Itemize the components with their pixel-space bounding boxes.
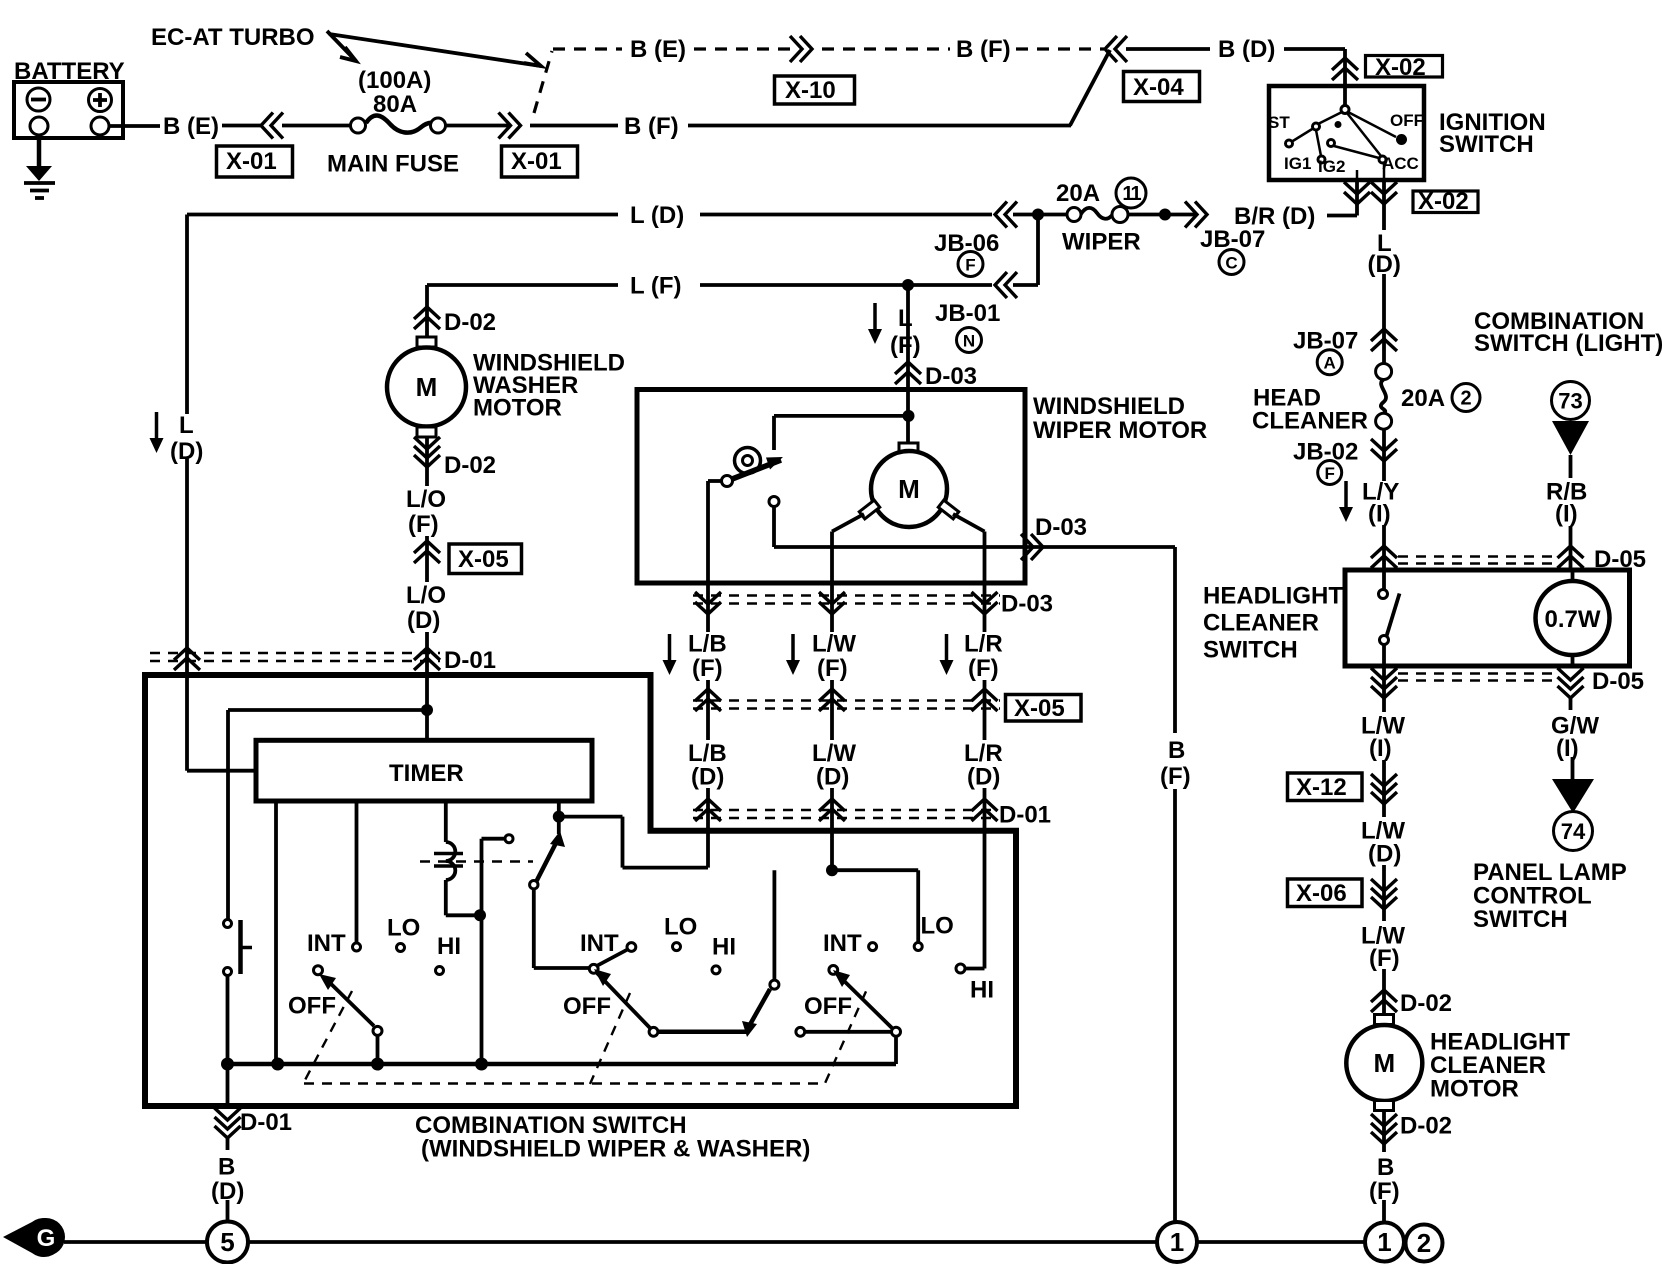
svg-text:(D): (D) — [1368, 841, 1401, 868]
svg-text:(F): (F) — [692, 655, 723, 682]
svg-text:OFF: OFF — [563, 993, 611, 1020]
svg-text:(D): (D) — [211, 1178, 244, 1205]
svg-text:L/B: L/B — [688, 631, 727, 658]
svg-text:X-02: X-02 — [1375, 54, 1426, 81]
svg-text:X-01: X-01 — [511, 148, 562, 175]
svg-text:HI: HI — [712, 934, 736, 961]
svg-text:D-02: D-02 — [1400, 1113, 1452, 1140]
svg-text:G: G — [37, 1225, 56, 1252]
svg-text:(I): (I) — [1556, 735, 1579, 762]
svg-text:OFF: OFF — [288, 993, 336, 1020]
svg-text:B (E): B (E) — [163, 113, 219, 140]
svg-text:(100A): (100A) — [358, 67, 431, 94]
svg-text:(F): (F) — [817, 655, 848, 682]
svg-text:20A: 20A — [1401, 385, 1445, 412]
svg-text:1: 1 — [1377, 1227, 1391, 1257]
svg-text:74: 74 — [1561, 819, 1586, 844]
svg-text:(WINDSHIELD WIPER & WASHER): (WINDSHIELD WIPER & WASHER) — [421, 1136, 810, 1163]
svg-text:LO: LO — [664, 914, 697, 941]
svg-text:L/O: L/O — [406, 486, 446, 513]
svg-text:20A: 20A — [1056, 180, 1100, 207]
svg-text:(D): (D) — [691, 764, 724, 791]
svg-text:(D): (D) — [407, 607, 440, 634]
svg-text:B: B — [1377, 1154, 1394, 1181]
svg-text:INT: INT — [580, 930, 619, 957]
svg-text:M: M — [898, 474, 920, 504]
svg-text:D-01: D-01 — [240, 1109, 292, 1136]
svg-text:SWITCH (LIGHT): SWITCH (LIGHT) — [1474, 330, 1662, 357]
svg-text:WIPER MOTOR: WIPER MOTOR — [1033, 417, 1207, 444]
svg-text:M: M — [416, 372, 438, 402]
svg-text:(F): (F) — [968, 655, 999, 682]
svg-text:73: 73 — [1558, 389, 1582, 414]
svg-text:X-02: X-02 — [1418, 188, 1469, 215]
svg-text:X-06: X-06 — [1296, 880, 1347, 907]
svg-text:X-05: X-05 — [458, 546, 509, 573]
svg-text:SWITCH: SWITCH — [1473, 906, 1568, 933]
svg-text:MOTOR: MOTOR — [1430, 1076, 1519, 1103]
svg-text:B (E): B (E) — [630, 36, 686, 63]
svg-text:(F): (F) — [890, 332, 921, 359]
svg-text:(D): (D) — [1368, 251, 1401, 278]
svg-text:(I): (I) — [1555, 501, 1578, 528]
svg-text:X-01: X-01 — [226, 148, 277, 175]
svg-text:D-03: D-03 — [1035, 514, 1087, 541]
svg-text:5: 5 — [220, 1227, 234, 1257]
svg-text:0.7W: 0.7W — [1544, 606, 1600, 633]
svg-text:CLEANER: CLEANER — [1252, 408, 1368, 435]
svg-text:INT: INT — [823, 930, 862, 957]
svg-text:L (F): L (F) — [630, 273, 682, 300]
svg-text:ACC: ACC — [1382, 154, 1419, 173]
svg-text:L/O: L/O — [406, 582, 446, 609]
svg-text:D-01: D-01 — [444, 647, 496, 674]
svg-text:(D): (D) — [170, 438, 203, 465]
svg-text:X-12: X-12 — [1296, 774, 1347, 801]
svg-text:C: C — [1225, 254, 1237, 273]
svg-text:D-03: D-03 — [925, 363, 977, 390]
svg-text:(D): (D) — [816, 764, 849, 791]
svg-text:X-04: X-04 — [1133, 74, 1184, 101]
svg-text:D-02: D-02 — [444, 452, 496, 479]
svg-text:LO: LO — [387, 915, 420, 942]
svg-text:SWITCH: SWITCH — [1439, 131, 1534, 158]
svg-text:JB-01: JB-01 — [935, 300, 1000, 327]
svg-text:MAIN FUSE: MAIN FUSE — [327, 151, 459, 178]
svg-text:IG1: IG1 — [1284, 154, 1311, 173]
svg-text:L: L — [898, 305, 913, 332]
svg-text:OFF: OFF — [1390, 111, 1424, 130]
svg-text:MOTOR: MOTOR — [473, 395, 562, 422]
svg-text:B (F): B (F) — [624, 113, 679, 140]
svg-text:D-03: D-03 — [1001, 591, 1053, 618]
svg-text:LO: LO — [921, 913, 954, 940]
svg-text:(F): (F) — [408, 511, 439, 538]
svg-text:F: F — [965, 256, 975, 275]
svg-text:N: N — [963, 332, 975, 351]
svg-text:WINDSHIELD: WINDSHIELD — [1033, 393, 1185, 420]
svg-text:M: M — [1373, 1048, 1395, 1078]
svg-text:B: B — [1168, 737, 1185, 764]
svg-text:HEADLIGHT: HEADLIGHT — [1203, 583, 1343, 610]
svg-text:B: B — [218, 1154, 235, 1181]
svg-text:D-01: D-01 — [999, 802, 1051, 829]
svg-text:D-02: D-02 — [1400, 990, 1452, 1017]
svg-text:B (F): B (F) — [956, 36, 1011, 63]
svg-text:11: 11 — [1122, 183, 1141, 205]
svg-text:B (D): B (D) — [1218, 36, 1275, 63]
svg-text:(D): (D) — [967, 764, 1000, 791]
svg-text:2: 2 — [1417, 1228, 1431, 1258]
svg-text:L/R: L/R — [964, 631, 1003, 658]
svg-text:INT: INT — [307, 930, 346, 957]
svg-text:TIMER: TIMER — [389, 760, 464, 787]
svg-text:1: 1 — [1170, 1227, 1184, 1257]
svg-text:HI: HI — [970, 977, 994, 1004]
svg-text:(I): (I) — [1369, 735, 1392, 762]
svg-text:L: L — [179, 412, 194, 439]
svg-text:L (D): L (D) — [630, 202, 684, 229]
svg-text:A: A — [1324, 354, 1336, 373]
svg-text:HI: HI — [437, 933, 461, 960]
svg-text:D-02: D-02 — [444, 309, 496, 336]
svg-text:(F): (F) — [1369, 945, 1400, 972]
svg-text:CLEANER: CLEANER — [1203, 610, 1319, 637]
svg-text:D-05: D-05 — [1592, 668, 1644, 695]
svg-text:X-10: X-10 — [785, 77, 836, 104]
svg-text:SWITCH: SWITCH — [1203, 637, 1298, 664]
svg-text:(I): (I) — [1368, 501, 1391, 528]
svg-text:(F): (F) — [1369, 1178, 1400, 1205]
svg-text:IG2: IG2 — [1318, 157, 1345, 176]
svg-text:L/W: L/W — [812, 631, 856, 658]
svg-text:ST: ST — [1268, 113, 1290, 132]
svg-text:OFF: OFF — [804, 993, 852, 1020]
svg-text:WIPER: WIPER — [1062, 229, 1141, 256]
svg-text:X-05: X-05 — [1014, 695, 1065, 722]
svg-text:EC-AT TURBO: EC-AT TURBO — [151, 24, 315, 51]
svg-text:F: F — [1325, 464, 1335, 483]
svg-text:(F): (F) — [1160, 763, 1191, 790]
svg-text:2: 2 — [1460, 388, 1471, 410]
